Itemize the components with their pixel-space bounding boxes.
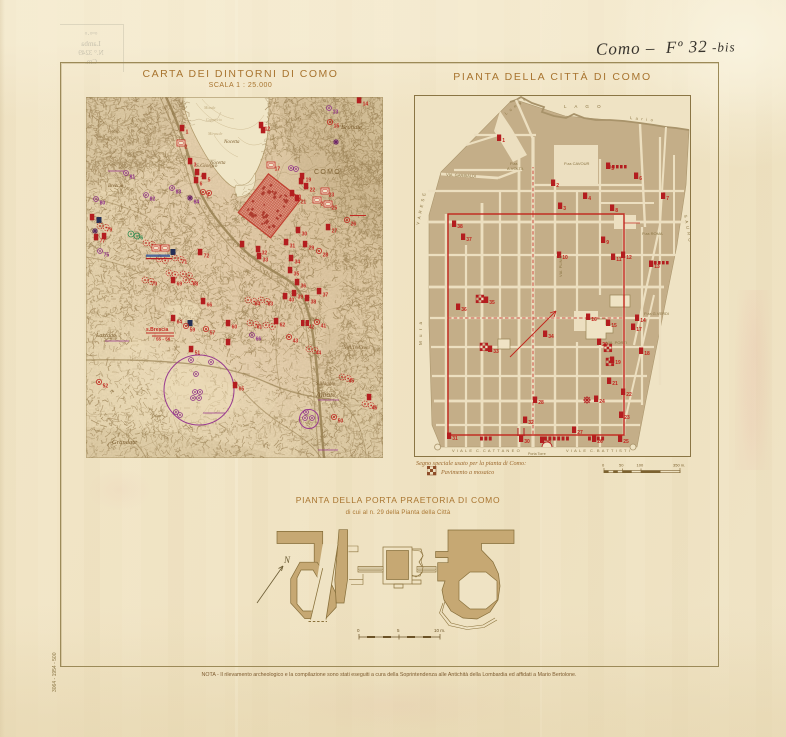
svg-text:32: 32 (262, 251, 268, 257)
svg-text:Nocetta: Nocetta (223, 140, 240, 145)
svg-text:11: 11 (616, 257, 622, 263)
svg-text:22: 22 (626, 392, 632, 398)
svg-text:28: 28 (538, 400, 544, 406)
svg-text:L A G O: L A G O (564, 104, 604, 109)
svg-text:P.za CAVOUR: P.za CAVOUR (564, 161, 590, 166)
svg-text:V I A L E C. C A T T A N E O: V I A L E C. C A T T A N E O (452, 448, 520, 453)
svg-text:42: 42 (309, 325, 315, 331)
svg-text:14: 14 (640, 318, 646, 324)
svg-text:Lazzago: Lazzago (95, 333, 116, 339)
svg-text:70: 70 (152, 282, 158, 288)
svg-text:27: 27 (332, 229, 338, 235)
svg-text:28: 28 (323, 253, 329, 259)
svg-text:3: 3 (194, 163, 197, 169)
svg-text:12: 12 (626, 255, 632, 261)
svg-text:46: 46 (372, 406, 378, 412)
svg-text:S.Maggio: S.Maggio (316, 382, 336, 387)
svg-text:Porta Torre: Porta Torre (528, 452, 546, 456)
svg-text:5: 5 (208, 178, 211, 184)
svg-text:10 m.: 10 m. (434, 628, 445, 633)
svg-text:23: 23 (624, 415, 630, 421)
svg-text:26: 26 (351, 222, 357, 228)
svg-text:35: 35 (489, 300, 495, 306)
svg-text:P.za ROMA: P.za ROMA (642, 231, 663, 236)
svg-text:50: 50 (619, 463, 624, 468)
svg-text:83: 83 (176, 190, 182, 196)
svg-text:15: 15 (334, 124, 340, 130)
svg-text:68: 68 (193, 282, 199, 288)
svg-text:43: 43 (293, 339, 299, 345)
svg-text:0: 0 (357, 628, 360, 633)
svg-text:0: 0 (602, 463, 605, 468)
svg-text:VIA PLINIO: VIA PLINIO (558, 255, 563, 277)
svg-text:s.Brescia: s.Brescia (146, 327, 168, 333)
svg-text:36: 36 (301, 284, 307, 290)
svg-text:69: 69 (177, 282, 183, 288)
svg-text:350 m.: 350 m. (673, 463, 685, 468)
svg-text:62: 62 (280, 323, 286, 329)
svg-text:24: 24 (599, 399, 605, 405)
svg-text:2: 2 (185, 145, 188, 151)
svg-text:38: 38 (457, 224, 463, 230)
svg-text:34: 34 (295, 260, 301, 266)
svg-text:33: 33 (493, 349, 499, 355)
svg-text:Nocetta: Nocetta (209, 161, 226, 166)
svg-text:61: 61 (257, 325, 263, 331)
svg-text:55 - 56: 55 - 56 (156, 337, 171, 342)
svg-text:76: 76 (138, 236, 144, 242)
svg-text:52: 52 (103, 384, 109, 390)
svg-text:44: 44 (316, 351, 322, 357)
svg-text:31: 31 (290, 244, 296, 250)
svg-text:17: 17 (636, 327, 642, 333)
svg-text:N: N (283, 555, 291, 565)
svg-text:14: 14 (363, 102, 369, 108)
svg-text:22: 22 (310, 188, 316, 194)
svg-text:13: 13 (333, 110, 339, 116)
svg-text:64: 64 (177, 320, 183, 326)
svg-text:21: 21 (301, 200, 307, 206)
svg-text:82: 82 (150, 197, 156, 203)
svg-text:60: 60 (232, 325, 238, 331)
svg-text:32: 32 (528, 420, 534, 426)
svg-text:35: 35 (294, 272, 300, 278)
svg-text:80: 80 (100, 201, 106, 207)
svg-text:Brunate: Brunate (341, 124, 362, 131)
svg-text:81: 81 (130, 175, 136, 181)
svg-text:Albate: Albate (315, 390, 336, 399)
svg-text:79: 79 (107, 228, 113, 234)
svg-text:50: 50 (338, 419, 344, 425)
svg-text:65: 65 (239, 387, 245, 393)
svg-text:5: 5 (397, 628, 400, 633)
svg-text:31: 31 (452, 436, 458, 442)
svg-text:23: 23 (329, 193, 335, 199)
svg-text:59: 59 (190, 328, 196, 334)
svg-text:2: 2 (556, 183, 559, 189)
svg-text:Grandate: Grandate (112, 439, 137, 446)
svg-text:M u r a: M u r a (418, 320, 423, 345)
svg-text:17: 17 (275, 167, 281, 173)
svg-text:P.za G.VERDI: P.za G.VERDI (644, 311, 669, 316)
svg-text:29: 29 (309, 246, 315, 252)
svg-text:19: 19 (615, 360, 621, 366)
svg-text:30: 30 (302, 232, 308, 238)
svg-text:66: 66 (256, 337, 262, 343)
svg-text:37: 37 (323, 293, 329, 299)
svg-text:9: 9 (606, 240, 609, 246)
svg-text:72: 72 (204, 254, 210, 260)
svg-text:Breccia: Breccia (108, 184, 124, 189)
svg-text:25: 25 (623, 439, 629, 445)
svg-text:57: 57 (210, 331, 216, 337)
svg-text:Vill.TreCroci: Vill.TreCroci (344, 346, 370, 351)
svg-text:13: 13 (654, 264, 660, 270)
svg-text:25: 25 (332, 206, 338, 212)
svg-text:16: 16 (591, 317, 597, 323)
svg-text:33: 33 (263, 258, 269, 264)
svg-text:27: 27 (577, 430, 583, 436)
svg-text:21: 21 (612, 381, 618, 387)
svg-text:51: 51 (195, 351, 201, 357)
svg-text:18: 18 (644, 351, 650, 357)
svg-text:75: 75 (104, 253, 110, 259)
svg-text:34: 34 (548, 334, 554, 340)
svg-text:7: 7 (666, 196, 669, 202)
svg-text:1: 1 (186, 130, 189, 136)
svg-text:15: 15 (611, 323, 617, 329)
svg-text:6: 6 (639, 176, 642, 182)
svg-text:COMO: COMO (314, 169, 341, 176)
svg-text:10: 10 (562, 255, 568, 261)
svg-text:64: 64 (255, 302, 261, 308)
svg-text:VIA PORTI: VIA PORTI (606, 340, 627, 345)
svg-text:19: 19 (306, 178, 312, 184)
svg-text:66: 66 (207, 303, 213, 309)
svg-text:6: 6 (200, 182, 203, 188)
svg-text:40: 40 (289, 298, 295, 304)
svg-text:3: 3 (563, 206, 566, 212)
svg-text:Pavimento a mosaico: Pavimento a mosaico (440, 469, 494, 476)
svg-text:84: 84 (194, 200, 200, 206)
svg-text:63: 63 (268, 302, 274, 308)
svg-text:1: 1 (502, 138, 505, 144)
svg-text:71: 71 (182, 260, 188, 266)
svg-text:37: 37 (466, 237, 472, 243)
svg-text:4: 4 (588, 196, 591, 202)
svg-text:8: 8 (615, 208, 618, 214)
svg-text:12: 12 (265, 127, 271, 133)
svg-text:100: 100 (637, 463, 644, 468)
svg-text:V I A L E C. B A T T I S T I: V I A L E C. B A T T I S T I (566, 448, 630, 453)
svg-text:45: 45 (349, 379, 355, 385)
svg-text:77: 77 (100, 239, 106, 245)
svg-text:41: 41 (321, 324, 327, 330)
svg-text:39: 39 (298, 295, 304, 301)
svg-text:36: 36 (461, 307, 467, 313)
svg-text:38: 38 (311, 300, 317, 306)
svg-text:30: 30 (524, 439, 530, 445)
